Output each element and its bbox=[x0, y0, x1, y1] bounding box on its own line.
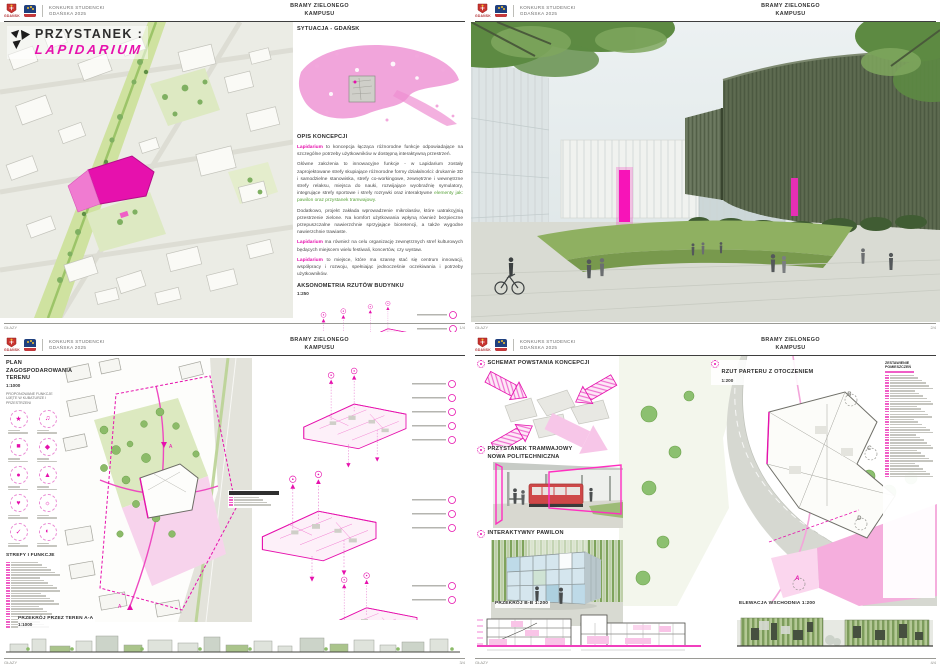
concept-paragraph-2: Główne założenia to innowacyjne funkcje … bbox=[297, 161, 463, 204]
function-icon: ◆ bbox=[39, 438, 57, 456]
gdansk-logo-label: GDAŃSK bbox=[475, 15, 491, 18]
function-icon-glyph: ◆ bbox=[45, 443, 50, 451]
board-2: GDAŃSK KONKURS STUDENCKI GDAŃSKA 2025 BR… bbox=[471, 0, 940, 332]
competition-line1: KONKURS STUDENCKI bbox=[49, 339, 105, 345]
room-schedule-heading: ZESTAWIENIE POMIESZCZEŃ bbox=[885, 361, 933, 370]
room-schedule: ZESTAWIENIE POMIESZCZEŃ bbox=[883, 360, 935, 598]
competition-line2: GDAŃSKA 2025 bbox=[520, 11, 576, 17]
panel-header: GDAŃSK KONKURS STUDENCKI GDAŃSKA 2025 BR… bbox=[475, 334, 936, 356]
functions-subheading-line2: UJĘTE W KUBATURZE I PRZESTRZENI bbox=[6, 396, 60, 405]
plan-marker-b: B bbox=[847, 392, 851, 398]
function-icon: ♥ bbox=[10, 494, 28, 512]
concept-paragraph-5: Lapidarium to miejsce, które ma szansę s… bbox=[297, 257, 463, 279]
map-inset bbox=[349, 76, 375, 102]
header-divider bbox=[42, 5, 43, 17]
panel-header: GDAŃSK KONKURS STUDENCKI GDAŃSKA 2025 BR… bbox=[4, 0, 465, 22]
function-icon-label bbox=[37, 542, 59, 548]
board-1: GDAŃSK KONKURS STUDENCKI GDAŃSKA 2025 BR… bbox=[0, 0, 469, 332]
board-4: GDAŃSK KONKURS STUDENCKI GDAŃSKA 2025 BR… bbox=[471, 334, 940, 667]
function-icon: ✓ bbox=[10, 523, 28, 541]
terrain-section-drawing bbox=[2, 628, 464, 658]
pavilion-icon bbox=[477, 530, 485, 538]
concept-scheme-heading-block: SCHEMAT POWSTANIA KONCEPCJI bbox=[477, 360, 591, 369]
function-legend-item: ★ bbox=[6, 410, 31, 435]
gdansk-crest-icon bbox=[477, 3, 488, 14]
function-icon-grid: ★ ♫ ■ ◆ ● ▲ ♥ ☼ ✓ ◐ bbox=[6, 410, 60, 548]
competition-label: KONKURS STUDENCKI GDAŃSKA 2025 bbox=[49, 339, 105, 351]
function-icon: ● bbox=[10, 466, 28, 484]
function-icon-glyph: ★ bbox=[15, 415, 21, 423]
function-icon-label bbox=[8, 513, 30, 519]
site-plan-legend bbox=[228, 490, 280, 508]
plan-marker-a: A bbox=[795, 576, 799, 582]
page-number: 1/4 bbox=[459, 325, 465, 330]
site-plan-drawing: A A bbox=[60, 358, 252, 622]
function-icon-glyph: ☼ bbox=[44, 500, 50, 507]
pavilion-heading: INTERAKTYWNY PAWILON bbox=[488, 530, 564, 538]
function-legend-item: ✓ bbox=[6, 523, 31, 548]
gdansk-situation-map bbox=[297, 36, 463, 128]
ground-floor-scale: 1:200 bbox=[722, 378, 814, 384]
gdansk-crest-icon bbox=[6, 337, 17, 348]
function-icon-label bbox=[8, 485, 30, 491]
function-icon-label bbox=[37, 485, 59, 491]
plan-marker-c: C bbox=[867, 446, 871, 452]
board-3: GDAŃSK KONKURS STUDENCKI GDAŃSKA 2025 BR… bbox=[0, 334, 469, 667]
entrance-perspective-render bbox=[471, 22, 940, 322]
panel-header: GDAŃSK KONKURS STUDENCKI GDAŃSKA 2025 BR… bbox=[475, 0, 936, 22]
partner-logo bbox=[495, 5, 507, 17]
gdansk-logo-label: GDAŃSK bbox=[4, 15, 20, 18]
partner-logo bbox=[495, 339, 507, 351]
function-legend-item: ● bbox=[6, 466, 31, 491]
project-title-line1: PRZYSTANEK : bbox=[35, 28, 143, 41]
concept-scheme-heading: SCHEMAT POWSTANIA KONCEPCJI bbox=[488, 360, 590, 368]
plan-marker-d: D bbox=[857, 516, 861, 522]
function-legend-item: ◐ bbox=[35, 523, 60, 548]
function-icon-label bbox=[37, 513, 59, 519]
legend-entries bbox=[229, 497, 279, 506]
function-legend-item: ▲ bbox=[35, 466, 60, 491]
competition-line1: KONKURS STUDENCKI bbox=[49, 5, 105, 11]
entry-code: GŁAZY bbox=[4, 660, 17, 665]
function-icon-label bbox=[8, 542, 30, 548]
competition-line1: KONKURS STUDENCKI bbox=[520, 5, 576, 11]
function-icon: ■ bbox=[10, 438, 28, 456]
board-title-line2: KAMPUSU bbox=[290, 11, 349, 18]
function-icon-label bbox=[37, 457, 59, 463]
board-title: BRAMY ZIELONEGO KAMPUSU bbox=[290, 337, 349, 352]
ground-floor-heading-block: RZUT PARTERU Z OTOCZENIEM 1:200 bbox=[711, 360, 815, 385]
tram-vehicle bbox=[529, 484, 583, 507]
zones-heading: STREFY I FUNKCJE bbox=[6, 553, 60, 559]
gdansk-logo-label: GDAŃSK bbox=[475, 349, 491, 352]
header-divider bbox=[42, 339, 43, 351]
panel-footer: GŁAZY 4/4 bbox=[475, 658, 936, 665]
function-legend-item: ♫ bbox=[35, 410, 60, 435]
tram-stop-heading-line1: PRZYSTANEK TRAMWAJOWY bbox=[488, 446, 573, 454]
concept-scheme-icon bbox=[477, 360, 485, 368]
lead-word: Lapidarium bbox=[297, 240, 323, 245]
legend-title-bar bbox=[229, 491, 279, 495]
panel-footer: GŁAZY 1/4 bbox=[4, 323, 465, 330]
functions-subheading: PROPONOWANE FUNKCJE UJĘTE W KUBATURZE I … bbox=[6, 392, 60, 406]
competition-label: KONKURS STUDENCKI GDAŃSKA 2025 bbox=[520, 339, 576, 351]
tram-stop-heading-line2: NOWA POLITECHNICZNA bbox=[488, 454, 573, 462]
paragraph-text: Dodatkowo, projekt zakłada wprowadzenie … bbox=[297, 209, 463, 236]
competition-line1: KONKURS STUDENCKI bbox=[520, 339, 576, 345]
east-elevation-drawing bbox=[737, 610, 933, 654]
site-location-dot bbox=[354, 80, 357, 83]
terrain-section-scale: 1:1000 bbox=[18, 622, 93, 628]
gdansk-crest-icon bbox=[6, 3, 17, 14]
function-legend-item: ■ bbox=[6, 438, 31, 463]
board-title-line1: BRAMY ZIELONEGO bbox=[290, 3, 349, 10]
partner-logo bbox=[24, 339, 36, 351]
board-title: BRAMY ZIELONEGO KAMPUSU bbox=[290, 3, 349, 18]
aerial-axonometric-render bbox=[0, 22, 293, 318]
function-legend-item: ◆ bbox=[35, 438, 60, 463]
partner-logo bbox=[24, 5, 36, 17]
concept-paragraph-1: Lapidarium to koncepcja łącząca różnorod… bbox=[297, 144, 463, 158]
board-title-line1: BRAMY ZIELONEGO bbox=[290, 337, 349, 344]
site-plan-heading: PLAN ZAGOSPODAROWANIA TERENU bbox=[6, 360, 60, 383]
function-icon-glyph: ● bbox=[16, 472, 20, 479]
tram-stop-icon bbox=[477, 446, 485, 454]
magenta-entrance-portal bbox=[619, 170, 630, 222]
function-icon-glyph: ✓ bbox=[16, 528, 22, 536]
concept-paragraph-3: Dodatkowo, projekt zakłada wprowadzenie … bbox=[297, 208, 463, 237]
entry-code: GŁAZY bbox=[4, 325, 17, 330]
tram-stop-render bbox=[493, 462, 623, 528]
function-legend-item: ♥ bbox=[6, 494, 31, 519]
function-icon: ★ bbox=[10, 410, 28, 428]
axonometry-heading: AKSONOMETRIA RZUTÓW BUDYNKU bbox=[297, 283, 463, 291]
board-title-line1: BRAMY ZIELONEGO bbox=[761, 3, 820, 10]
lead-word: Lapidarium bbox=[297, 258, 323, 263]
competition-boards-sheet: GDAŃSK KONKURS STUDENCKI GDAŃSKA 2025 BR… bbox=[0, 0, 940, 667]
function-icon: ▲ bbox=[39, 466, 57, 484]
section-bb-drawing bbox=[475, 610, 703, 654]
function-legend-item: ☼ bbox=[35, 494, 60, 519]
gdansk-logo: GDAŃSK bbox=[475, 337, 491, 352]
panel-header: GDAŃSK KONKURS STUDENCKI GDAŃSKA 2025 BR… bbox=[4, 334, 465, 356]
concept-paragraph-4: Lapidarium ma również na celu organizacj… bbox=[297, 239, 463, 253]
tram-stop-heading: PRZYSTANEK TRAMWAJOWY NOWA POLITECHNICZN… bbox=[488, 446, 573, 461]
page-number: 4/4 bbox=[930, 660, 936, 665]
function-icon-glyph: ■ bbox=[16, 443, 20, 450]
board-title-line2: KAMPUSU bbox=[761, 11, 820, 18]
board-title: BRAMY ZIELONEGO KAMPUSU bbox=[761, 337, 820, 352]
page-number: 3/4 bbox=[459, 660, 465, 665]
panel-footer: GŁAZY 2/4 bbox=[475, 323, 936, 330]
competition-label: KONKURS STUDENCKI GDAŃSKA 2025 bbox=[520, 5, 576, 17]
gdansk-logo: GDAŃSK bbox=[4, 3, 20, 18]
paragraph-text: ma również na celu organizację zewnętrzn… bbox=[297, 240, 463, 252]
ground-floor-heading: RZUT PARTERU Z OTOCZENIEM bbox=[722, 369, 814, 375]
function-icon: ☼ bbox=[39, 494, 57, 512]
header-divider bbox=[513, 339, 514, 351]
project-logo-icon bbox=[9, 28, 31, 50]
function-icon-label bbox=[8, 429, 30, 435]
competition-line2: GDAŃSKA 2025 bbox=[49, 11, 105, 17]
function-icon-label bbox=[8, 457, 30, 463]
situation-heading: SYTUACJA - GDAŃSK bbox=[297, 26, 463, 34]
board-title: BRAMY ZIELONEGO KAMPUSU bbox=[761, 3, 820, 18]
gdansk-logo: GDAŃSK bbox=[4, 337, 20, 352]
function-icon-glyph: ◐ bbox=[45, 528, 49, 535]
board-title-line2: KAMPUSU bbox=[290, 345, 349, 352]
project-title-block: PRZYSTANEK : LAPIDARIUM bbox=[7, 26, 148, 59]
gdansk-crest-icon bbox=[477, 337, 488, 348]
entry-code: GŁAZY bbox=[475, 325, 488, 330]
pavilion-heading-block: INTERAKTYWNY PAWILON bbox=[477, 530, 566, 539]
function-icon-glyph: ▲ bbox=[44, 472, 51, 479]
project-title-line2: LAPIDARIUM bbox=[34, 43, 144, 56]
competition-line2: GDAŃSKA 2025 bbox=[49, 345, 105, 351]
floor-plans-axonometry-column bbox=[252, 360, 464, 620]
header-divider bbox=[513, 5, 514, 17]
lead-word: Lapidarium bbox=[297, 145, 323, 150]
terrain-section-heading-block: PRZEKRÓJ PRZEZ TEREN A-A 1:1000 bbox=[18, 616, 95, 629]
page-number: 2/4 bbox=[930, 325, 936, 330]
panel1-right-column: SYTUACJA - GDAŃSK OPIS KONCEPCJI Lapidar… bbox=[297, 26, 463, 332]
room-schedule-entries bbox=[885, 375, 933, 478]
site-plan-scale: 1:1000 bbox=[6, 383, 60, 389]
concept-heading: OPIS KONCEPCJI bbox=[297, 134, 463, 142]
board-title-line2: KAMPUSU bbox=[761, 345, 820, 352]
east-elevation-heading: ELEWACJA WSCHODNIA 1:200 bbox=[739, 601, 817, 608]
ground-floor-icon bbox=[711, 360, 719, 368]
function-icon-glyph: ♫ bbox=[45, 415, 50, 422]
tram-stop-heading-block: PRZYSTANEK TRAMWAJOWY NOWA POLITECHNICZN… bbox=[477, 446, 574, 462]
board-title-line1: BRAMY ZIELONEGO bbox=[761, 337, 820, 344]
entry-code: GŁAZY bbox=[475, 660, 488, 665]
competition-line2: GDAŃSKA 2025 bbox=[520, 345, 576, 351]
room-schedule-accent bbox=[885, 371, 914, 373]
section-bb-heading: PRZEKRÓJ B-B 1:200 bbox=[495, 601, 550, 608]
paragraph-text: to miejsce, które ma szansę stać się cen… bbox=[297, 258, 463, 277]
paragraph-text: to koncepcja łącząca różnorodne funkcje … bbox=[297, 145, 463, 157]
function-icon-glyph: ♥ bbox=[16, 500, 20, 507]
function-icon-label bbox=[37, 429, 59, 435]
function-icon: ♫ bbox=[39, 410, 57, 428]
competition-label: KONKURS STUDENCKI GDAŃSKA 2025 bbox=[49, 5, 105, 17]
function-icon: ◐ bbox=[39, 523, 57, 541]
gdansk-logo: GDAŃSK bbox=[475, 3, 491, 18]
panel-footer: GŁAZY 3/4 bbox=[4, 658, 465, 665]
gdansk-logo-label: GDAŃSK bbox=[4, 349, 20, 352]
panel3-left-column: PLAN ZAGOSPODAROWANIA TERENU 1:1000 PROP… bbox=[6, 360, 60, 629]
